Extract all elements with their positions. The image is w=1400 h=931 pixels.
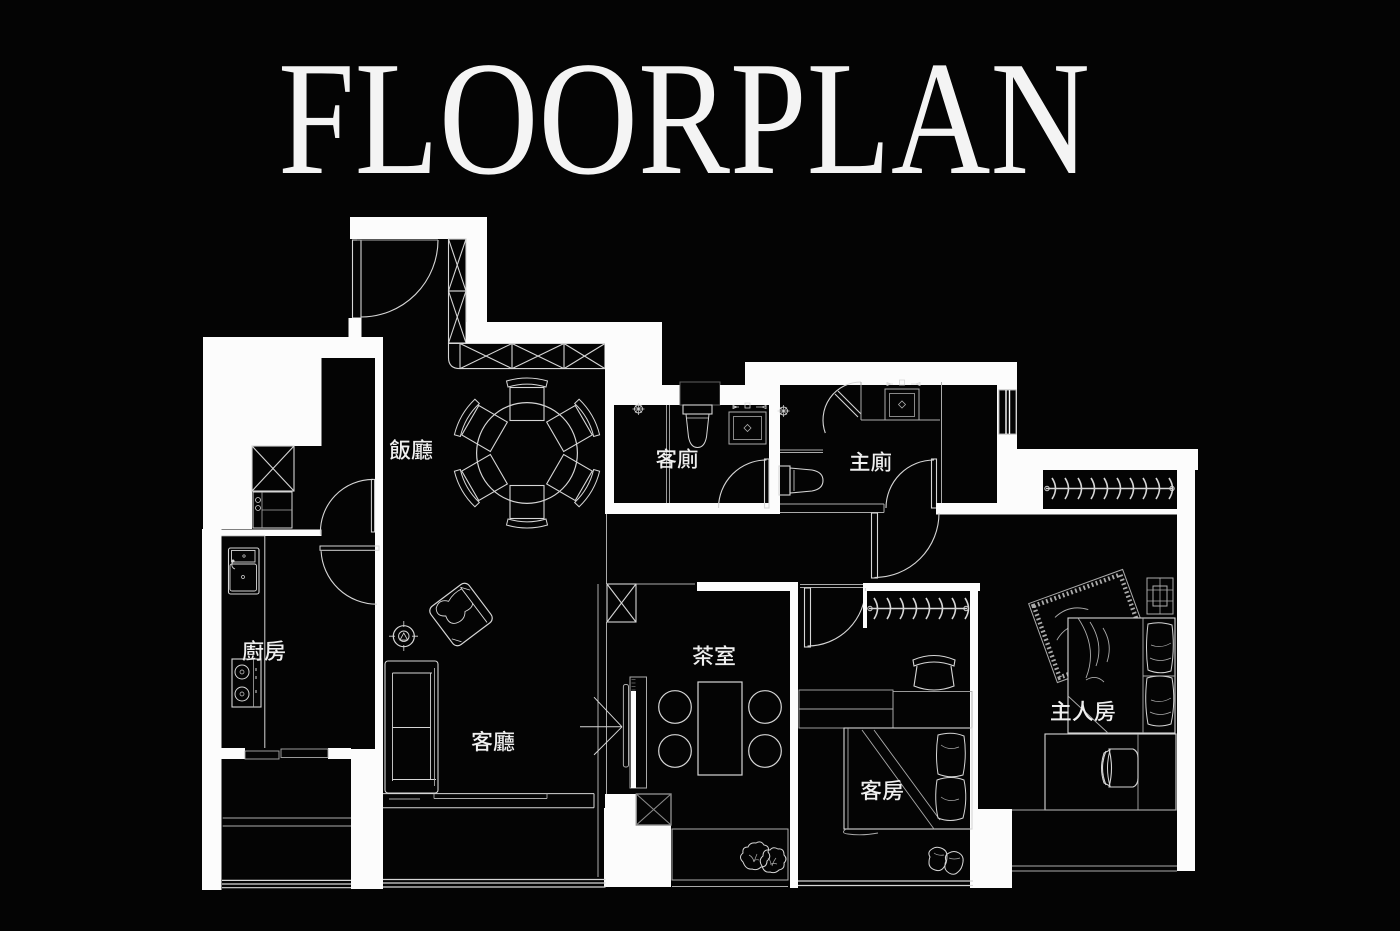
svg-text:FLOORPLAN: FLOORPLAN: [278, 29, 1090, 209]
